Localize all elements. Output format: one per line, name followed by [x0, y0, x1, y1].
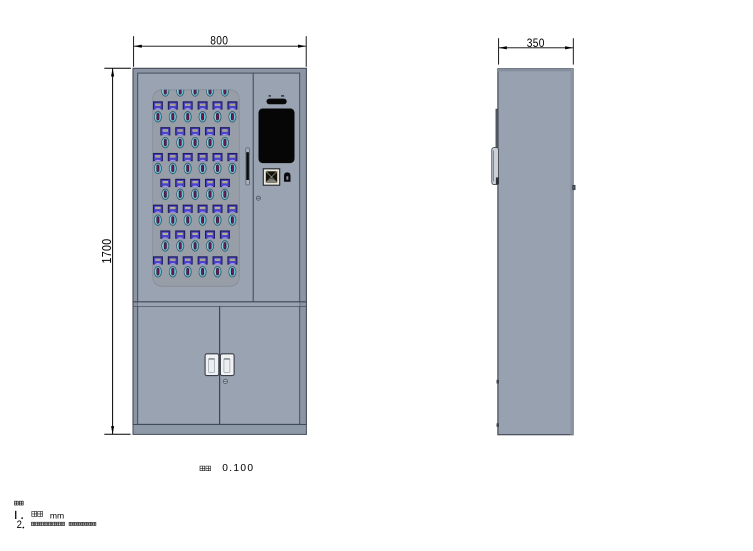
svg-text:800: 800	[210, 35, 228, 48]
svg-text:0.100: 0.100	[222, 463, 254, 474]
svg-text:mm: mm	[50, 511, 64, 521]
svg-text:1700: 1700	[100, 239, 114, 264]
svg-text:350: 350	[527, 37, 545, 50]
svg-text:2: 2	[17, 519, 23, 531]
